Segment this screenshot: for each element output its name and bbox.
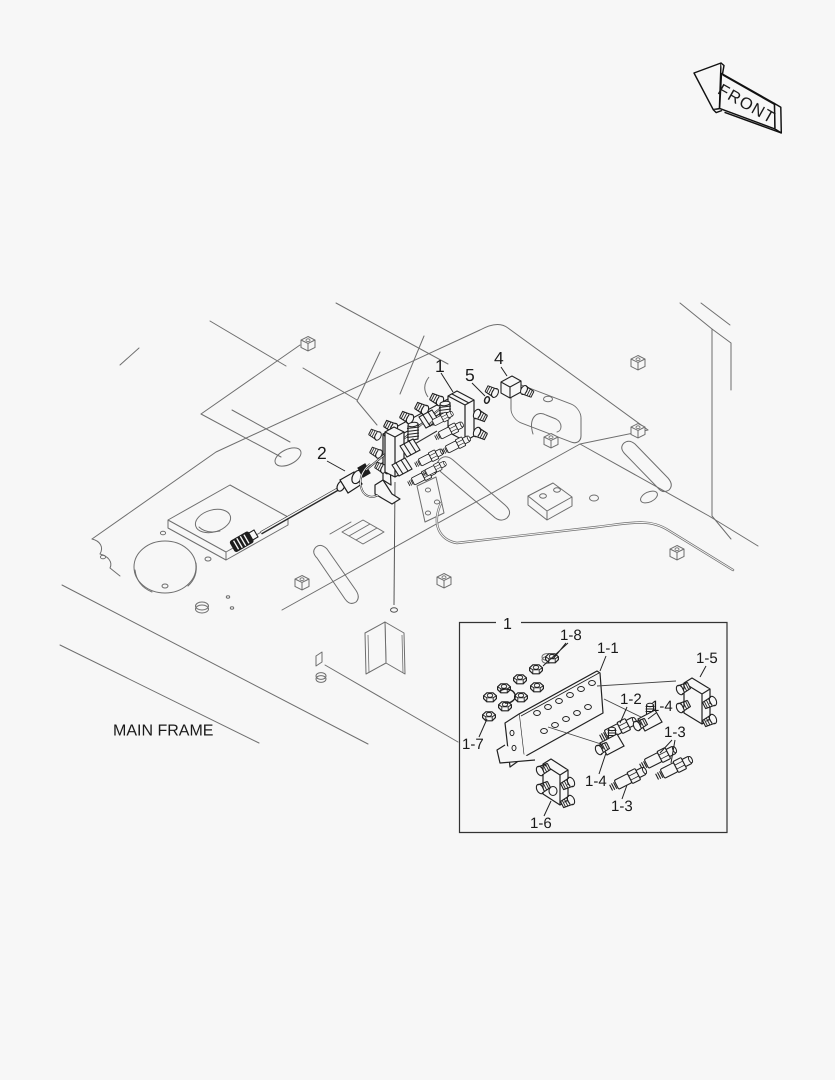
svg-text:5: 5 (465, 365, 475, 385)
svg-text:2: 2 (317, 443, 327, 463)
svg-text:4: 4 (494, 348, 504, 368)
svg-text:1-8: 1-8 (560, 627, 582, 644)
svg-text:1-2: 1-2 (620, 691, 642, 708)
svg-text:1-1: 1-1 (597, 640, 619, 657)
svg-text:1: 1 (503, 616, 512, 633)
svg-text:1-5: 1-5 (696, 650, 718, 667)
svg-text:1-7: 1-7 (462, 736, 484, 753)
svg-text:MAIN FRAME: MAIN FRAME (113, 723, 213, 740)
svg-text:1-3: 1-3 (664, 724, 686, 741)
svg-text:1-4: 1-4 (585, 773, 607, 790)
svg-text:1-4: 1-4 (651, 698, 673, 715)
svg-text:1: 1 (435, 356, 445, 376)
svg-text:1-6: 1-6 (530, 815, 552, 832)
svg-text:1-3: 1-3 (611, 798, 633, 815)
